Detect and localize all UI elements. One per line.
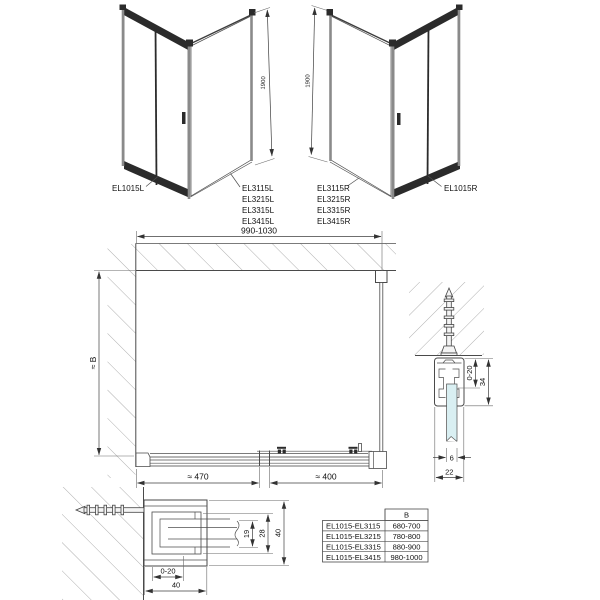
door-model-label: EL1015L [112, 184, 145, 193]
glass-thickness-label: 6 [450, 453, 454, 462]
door-handle [397, 113, 401, 125]
door-model-label: EL1015R [444, 184, 478, 193]
panel-label-leader [231, 174, 241, 188]
side-panel-wall-bracket [327, 9, 334, 16]
bottom-width-label: 40 [172, 581, 180, 590]
door-middle-stile [156, 25, 157, 185]
iso-view-left: 1900 EL1015L EL3115L EL3215L EL3315L EL3… [112, 5, 275, 227]
roller-wheel [349, 450, 352, 454]
plan-right-dimensions: 19 28 40 [203, 501, 289, 566]
side-panel-wall-bracket [249, 9, 256, 16]
wall-hatch [62, 487, 143, 600]
combination-cell: EL1015-EL3415 [326, 553, 381, 562]
door-top-cap [456, 5, 463, 11]
side-panel-glass [191, 16, 251, 196]
iso-view-right: 1900 EL3115R EL3215R EL3315R EL3415R EL1… [305, 5, 477, 227]
profile-width-label: 22 [445, 468, 453, 477]
door-handle [182, 112, 186, 124]
roller [349, 447, 358, 449]
table-row: EL1015-EL3115 680-700 [326, 522, 420, 531]
depth-dimension-label: 34 [478, 378, 487, 386]
adjustment-dimension-label: 0-20 [160, 567, 175, 576]
corner-top-joint [389, 40, 396, 47]
side-panel-glass [331, 16, 391, 196]
width-cell: 780-800 [393, 532, 421, 541]
ceiling-hatch [136, 244, 397, 271]
wall-profile-plan-detail: 19 28 40 0-20 40 [62, 487, 289, 600]
width-cell: 880-900 [393, 542, 421, 551]
combination-cell: EL1015-EL3315 [326, 542, 381, 551]
wall-profile-bracket [376, 271, 388, 283]
front-elevation: 990-1030 ≈ B ≈ 470 ≈ 400 [88, 226, 396, 489]
roller-wheel [283, 450, 286, 454]
combination-cell: EL1015-EL3215 [326, 532, 381, 541]
wall-profile-section-detail: 0-20 34 6 22 [409, 282, 493, 482]
rail-left-cap [136, 453, 150, 467]
table-row: EL1015-EL3415 980-1000 [326, 553, 423, 562]
bottom-rail [136, 444, 387, 469]
door-middle-stile [428, 27, 429, 184]
iso-right-height-dimension: 1900 [305, 6, 329, 163]
height-dimension-label: ≈ B [88, 356, 98, 369]
door-part-dimension-label: ≈ 400 [315, 472, 336, 482]
outer-dimension-label: 40 [274, 529, 283, 537]
adjustable-insert [152, 512, 201, 554]
height-dimension-label: 1900 [261, 76, 267, 90]
roller [277, 447, 286, 449]
inner-dimension-label: 19 [242, 530, 251, 538]
wall-profile-front [380, 283, 383, 453]
panel-model-label: EL3315L [242, 206, 275, 215]
technical-drawing-page: 1900 EL1015L EL3115L EL3215L EL3315L EL3… [0, 0, 600, 600]
left-wall-hatch [108, 244, 136, 478]
panel-model-label: EL3115R [317, 184, 350, 193]
glass-panel-section [447, 384, 457, 441]
panel-model-label: EL3215R [317, 195, 351, 204]
adjustment-dimension-label: 0-20 [465, 365, 474, 380]
iso-left-height-dimension: 1900 [254, 8, 275, 166]
door-top-cap [120, 5, 127, 11]
door-stopper [359, 444, 362, 452]
side-panel-top-profile [190, 14, 253, 44]
glass-break-mark [235, 521, 239, 546]
door-top-rail [392, 6, 460, 51]
drawing-canvas: 1900 EL1015L EL3115L EL3215L EL3315L EL3… [0, 0, 600, 600]
table-column-header: B [404, 511, 409, 520]
corner-top-joint [186, 40, 193, 47]
roller-wheel [278, 450, 281, 454]
fixed-part-dimension-label: ≈ 470 [187, 472, 208, 482]
panel-model-label: EL3115L [242, 184, 274, 193]
side-panel-top-profile [329, 14, 392, 44]
panel-model-label: EL3215L [242, 195, 275, 204]
table-row: EL1015-EL3215 780-800 [326, 532, 420, 541]
panel-model-label: EL3415R [317, 217, 351, 226]
middle-dimension-label: 28 [258, 529, 267, 537]
rail-right-cap [369, 452, 387, 469]
combination-cell: EL1015-EL3115 [326, 522, 380, 531]
panel-model-label: EL3315R [317, 206, 351, 215]
width-cell: 680-700 [393, 522, 421, 531]
roller-wheel [354, 450, 357, 454]
size-table: B EL1015-EL3115 680-700 EL1015-EL3215 78… [323, 509, 429, 562]
front-part-dimensions: ≈ 470 ≈ 400 [137, 467, 383, 488]
table-row: EL1015-EL3315 880-900 [326, 542, 420, 551]
width-dimension-label: 990-1030 [241, 226, 277, 236]
width-cell: 980-1000 [390, 553, 422, 562]
height-dimension-label: 1900 [305, 74, 311, 88]
